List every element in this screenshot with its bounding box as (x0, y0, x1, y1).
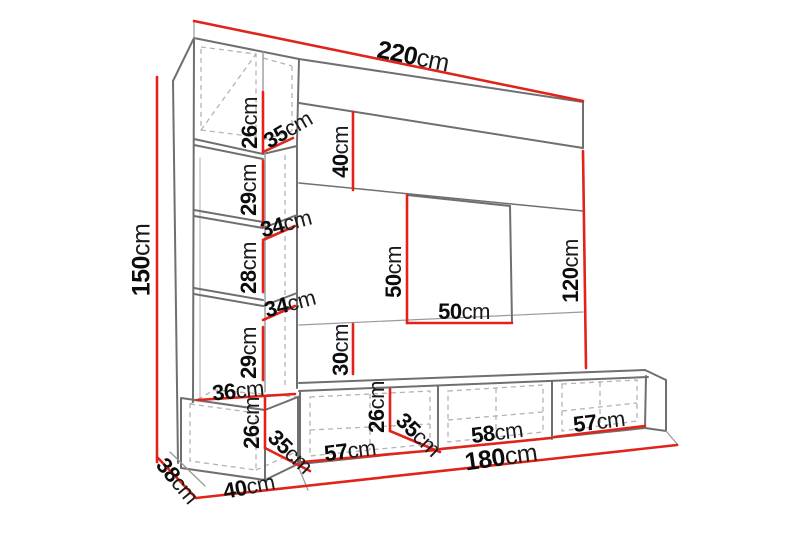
dim-label-29-upper: 29cm (238, 164, 260, 216)
dimension-diagram: 220cm 150cm 26cm 35cm 40cm 29cm 34cm 28c… (0, 0, 800, 533)
dim-line-120 (583, 151, 586, 368)
dim-label-26-bench: 26cm (366, 381, 388, 433)
dim-label-29-lower: 29cm (238, 327, 260, 379)
dim-label-26-top: 26cm (239, 97, 261, 149)
bench-right-side (645, 370, 666, 431)
dim-label-40-band: 40cm (330, 126, 352, 178)
bench-floor-connector-right (666, 431, 678, 445)
bench-right-front-edge (645, 376, 646, 427)
column-left-edge (173, 81, 178, 463)
dim-label-50-vert: 50cm (383, 246, 405, 298)
bench-top-front-edge (299, 377, 648, 391)
column-top-edge (173, 38, 299, 81)
dim-label-30: 30cm (330, 324, 352, 376)
dim-label-28: 28cm (238, 242, 260, 294)
dim-label-26-base: 26cm (241, 397, 263, 449)
column-front-left-edge (193, 38, 194, 402)
dim-label-50-horiz: 50cm (438, 301, 490, 323)
panel-upper-edge (299, 183, 583, 211)
dim-label-150: 150cm (130, 224, 155, 297)
dim-label-120: 120cm (560, 239, 582, 303)
